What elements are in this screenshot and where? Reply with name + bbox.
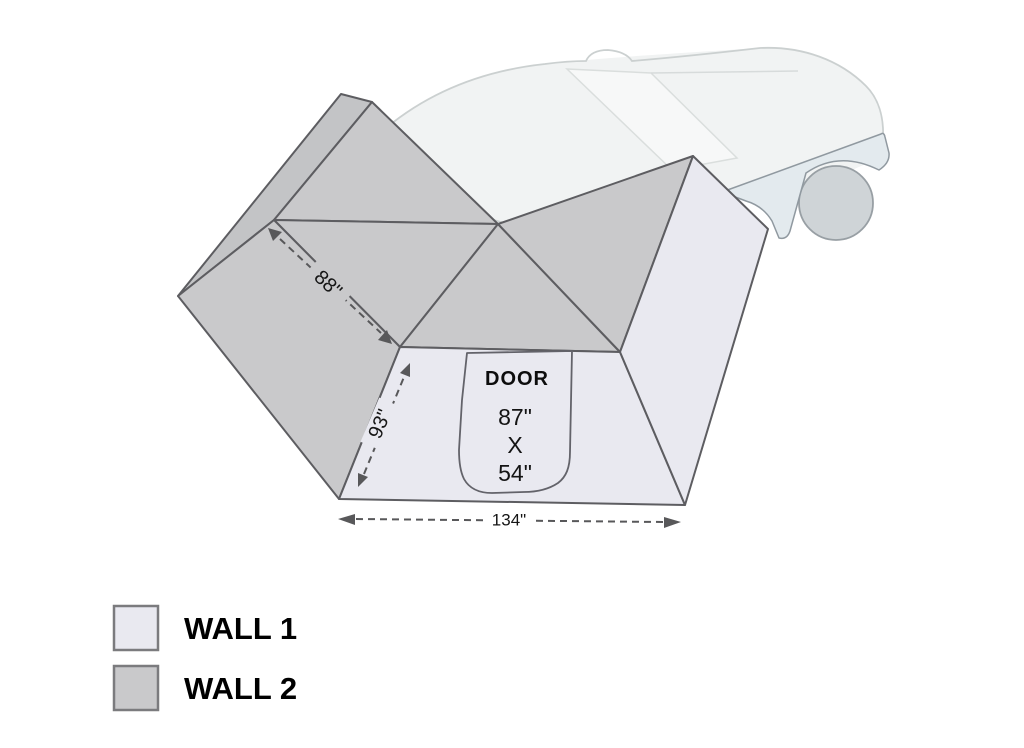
legend-swatch-wall1 (114, 606, 158, 650)
arrowhead-134-right (664, 517, 681, 528)
door-height-value: 87" (498, 404, 532, 430)
legend: WALL 1 WALL 2 (114, 606, 297, 710)
legend-label-wall2: WALL 2 (184, 671, 297, 706)
arrowhead-134-left (338, 514, 355, 525)
door-width-value: 54" (498, 460, 532, 486)
legend-swatch-wall2 (114, 666, 158, 710)
vehicle-wheel (799, 166, 873, 240)
legend-label-wall1: WALL 1 (184, 611, 297, 646)
door-dim-separator: X (507, 432, 522, 458)
dimension-base-width: 134" (338, 509, 681, 531)
product-diagram: DOOR 87" X 54" 88" 93" 134" WALL 1 (0, 0, 1024, 748)
dimension-label-134: 134" (492, 510, 526, 529)
door-label: DOOR (485, 368, 549, 390)
